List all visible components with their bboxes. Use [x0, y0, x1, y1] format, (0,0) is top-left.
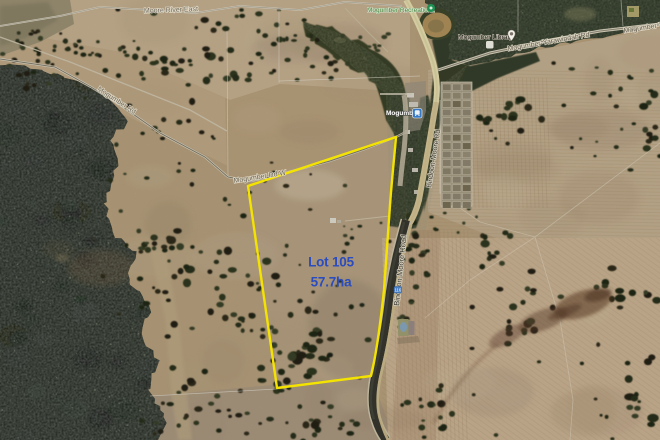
svg-text:Mogumber Recreation..: Mogumber Recreation.. — [367, 7, 435, 14]
svg-text:57.7ha: 57.7ha — [311, 275, 353, 290]
svg-text:Mogumber Library: Mogumber Library — [458, 34, 514, 41]
svg-text:Lot 105: Lot 105 — [308, 255, 355, 270]
svg-text:116: 116 — [394, 288, 401, 293]
